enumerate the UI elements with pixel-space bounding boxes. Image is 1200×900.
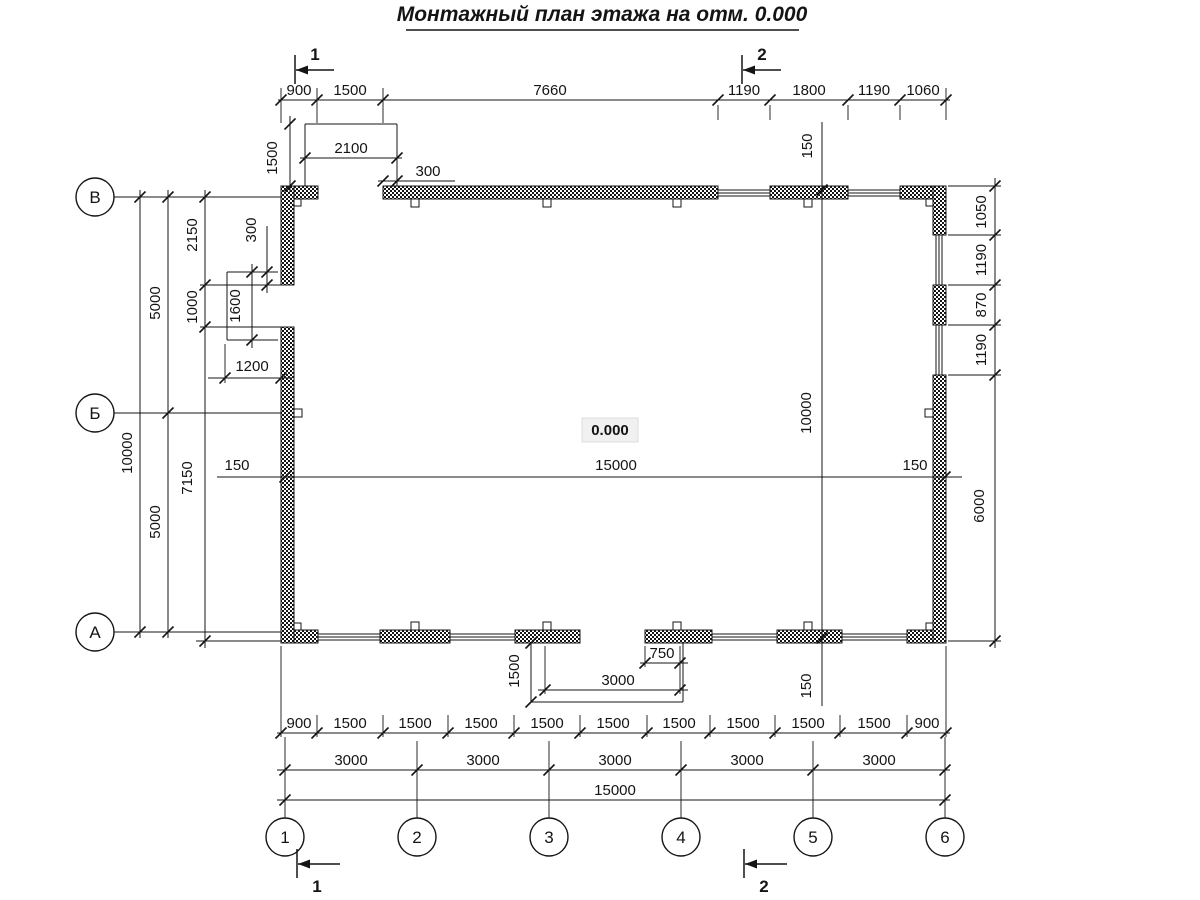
- axis-label: 4: [676, 828, 685, 847]
- dim-label: 1500: [264, 141, 281, 174]
- bottom-porch: 1500 750 3000: [506, 638, 688, 708]
- dim-label: 1200: [235, 358, 268, 375]
- drawing-title: Монтажный план этажа на отм. 0.000: [397, 3, 808, 30]
- floor-plan-drawing: Монтажный план этажа на отм. 0.000: [0, 0, 1200, 900]
- page-title: Монтажный план этажа на отм. 0.000: [397, 3, 808, 26]
- walls: [281, 186, 946, 643]
- dim-label: 3000: [598, 752, 631, 769]
- dim-label: 150: [798, 673, 815, 698]
- left-dimension-columns: 10000 5000 5000 2150 1000 7150: [119, 190, 281, 648]
- dim-label: 1190: [858, 82, 890, 99]
- dim-label: 3000: [466, 752, 499, 769]
- left-porch-detail: 1600 300 1200: [208, 217, 292, 383]
- section-label: 2: [757, 45, 766, 64]
- axis-label: 6: [940, 828, 949, 847]
- dim-label: 1500: [857, 715, 890, 732]
- axis-label: 2: [412, 828, 421, 847]
- top-left-porch: 2100 1500 300: [264, 116, 455, 192]
- section-label: 1: [310, 45, 319, 64]
- column-markers: [294, 199, 933, 630]
- dim-label: 150: [799, 133, 816, 158]
- dim-label: 750: [649, 645, 674, 662]
- dim-label: 15000: [594, 782, 636, 799]
- dim-label: 300: [415, 163, 440, 180]
- dim-label: 3000: [862, 752, 895, 769]
- dim-label: 7150: [179, 461, 196, 494]
- dim-label: 1000: [184, 290, 201, 323]
- dim-label: 1600: [227, 289, 244, 322]
- dim-label: 2100: [334, 140, 367, 157]
- dim-label: 1500: [333, 82, 366, 99]
- dim-label: 3000: [334, 752, 367, 769]
- interior-dimensions: 150 15000 150 150 10000 150 0.000: [217, 122, 962, 706]
- dim-label: 2150: [184, 218, 201, 251]
- dim-label: 15000: [595, 457, 637, 474]
- dim-label: 3000: [601, 672, 634, 689]
- dim-label: 1500: [596, 715, 629, 732]
- dim-label: 1190: [728, 82, 760, 99]
- dim-label: 10000: [119, 432, 136, 474]
- dim-label: 1500: [464, 715, 497, 732]
- dim-label: 1500: [530, 715, 563, 732]
- axis-label: 5: [808, 828, 817, 847]
- axis-label: А: [89, 623, 101, 642]
- dim-label: 1500: [398, 715, 431, 732]
- dim-label: 1190: [973, 244, 990, 276]
- dim-label: 150: [224, 457, 249, 474]
- section-mark-1-top: 1: [295, 45, 334, 84]
- dim-label: 1500: [662, 715, 695, 732]
- dim-label: 6000: [971, 489, 988, 522]
- dim-label: 3000: [730, 752, 763, 769]
- dim-label: 1500: [506, 654, 523, 687]
- dim-label: 900: [286, 715, 311, 732]
- dim-label: 870: [973, 292, 990, 317]
- dim-label: 1190: [973, 334, 990, 366]
- dim-label: 1800: [792, 82, 825, 99]
- dim-label: 900: [286, 82, 311, 99]
- axis-label: В: [89, 188, 100, 207]
- dim-label: 900: [914, 715, 939, 732]
- drawing-sheet: Монтажный план этажа на отм. 0.000: [0, 0, 1200, 900]
- section-mark-1-bottom: 1: [297, 849, 340, 896]
- right-dimension-column: 1050 1190 870 1190 6000: [948, 178, 1001, 648]
- dim-label: 1050: [973, 195, 990, 228]
- dim-label: 10000: [798, 392, 815, 434]
- bottom-dimension-chains: 900 1500 1500 1500 1500 1500 1500 1500 1…: [276, 646, 952, 806]
- axis-label: Б: [89, 404, 100, 423]
- section-mark-2-bottom: 2: [744, 849, 787, 896]
- dim-label: 1500: [791, 715, 824, 732]
- dim-label: 150: [902, 457, 927, 474]
- section-label: 1: [312, 877, 321, 896]
- windows: [318, 190, 942, 640]
- dim-label: 5000: [147, 286, 164, 319]
- dim-label: 1500: [726, 715, 759, 732]
- elevation-label: 0.000: [591, 422, 629, 439]
- section-mark-2-top: 2: [742, 45, 781, 84]
- row-axis-bubbles: В Б А: [76, 178, 281, 651]
- dim-label: 1500: [333, 715, 366, 732]
- section-label: 2: [759, 877, 768, 896]
- axis-label: 1: [280, 828, 289, 847]
- dim-label: 5000: [147, 505, 164, 538]
- dim-label: 300: [243, 217, 260, 242]
- dim-label: 7660: [533, 82, 566, 99]
- top-dimension-chain: 900 1500 7660 1190 1800 1190 1060: [276, 82, 952, 123]
- axis-label: 3: [544, 828, 553, 847]
- dim-label: 1060: [906, 82, 939, 99]
